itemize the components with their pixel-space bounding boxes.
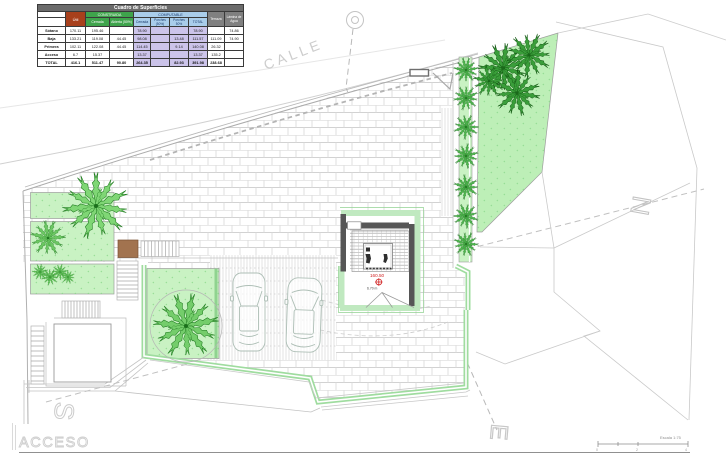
- svg-text:S: S: [48, 401, 79, 422]
- svg-text:6.70 m: 6.70 m: [367, 287, 378, 291]
- svg-text:0: 0: [596, 448, 598, 452]
- svg-text:E: E: [484, 423, 512, 441]
- svg-text:160.50: 160.50: [370, 273, 384, 278]
- svg-text:ACCESO: ACCESO: [19, 435, 90, 451]
- svg-text:Escala 1:75: Escala 1:75: [660, 435, 682, 440]
- svg-text:4: 4: [685, 448, 687, 452]
- svg-text:2: 2: [636, 448, 638, 452]
